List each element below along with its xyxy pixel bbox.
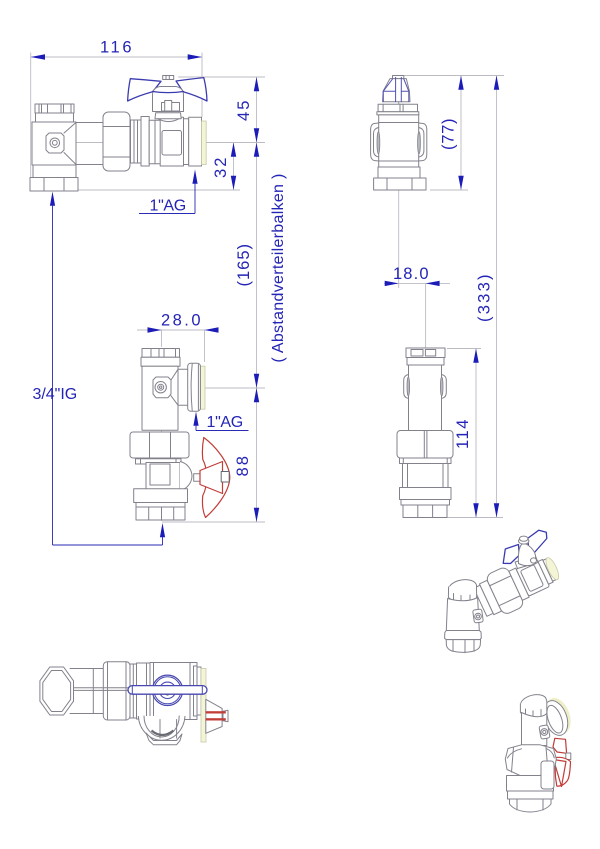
svg-text:1"AG: 1"AG [207,414,244,431]
svg-text:18.0: 18.0 [393,265,431,283]
svg-text:(77): (77) [440,116,458,150]
svg-text:( Abstandverteilerbalken ): ( Abstandverteilerbalken ) [270,173,287,362]
svg-text:88: 88 [234,454,252,477]
svg-text:3/4"IG: 3/4"IG [33,386,78,403]
svg-text:114: 114 [454,417,472,449]
svg-text:116: 116 [100,39,134,57]
svg-text:28.0: 28.0 [161,312,203,330]
svg-text:1"AG: 1"AG [150,198,187,215]
svg-text:(333): (333) [476,272,494,322]
svg-text:(165): (165) [235,242,253,287]
svg-text:45: 45 [235,98,253,121]
svg-text:32: 32 [212,155,230,178]
